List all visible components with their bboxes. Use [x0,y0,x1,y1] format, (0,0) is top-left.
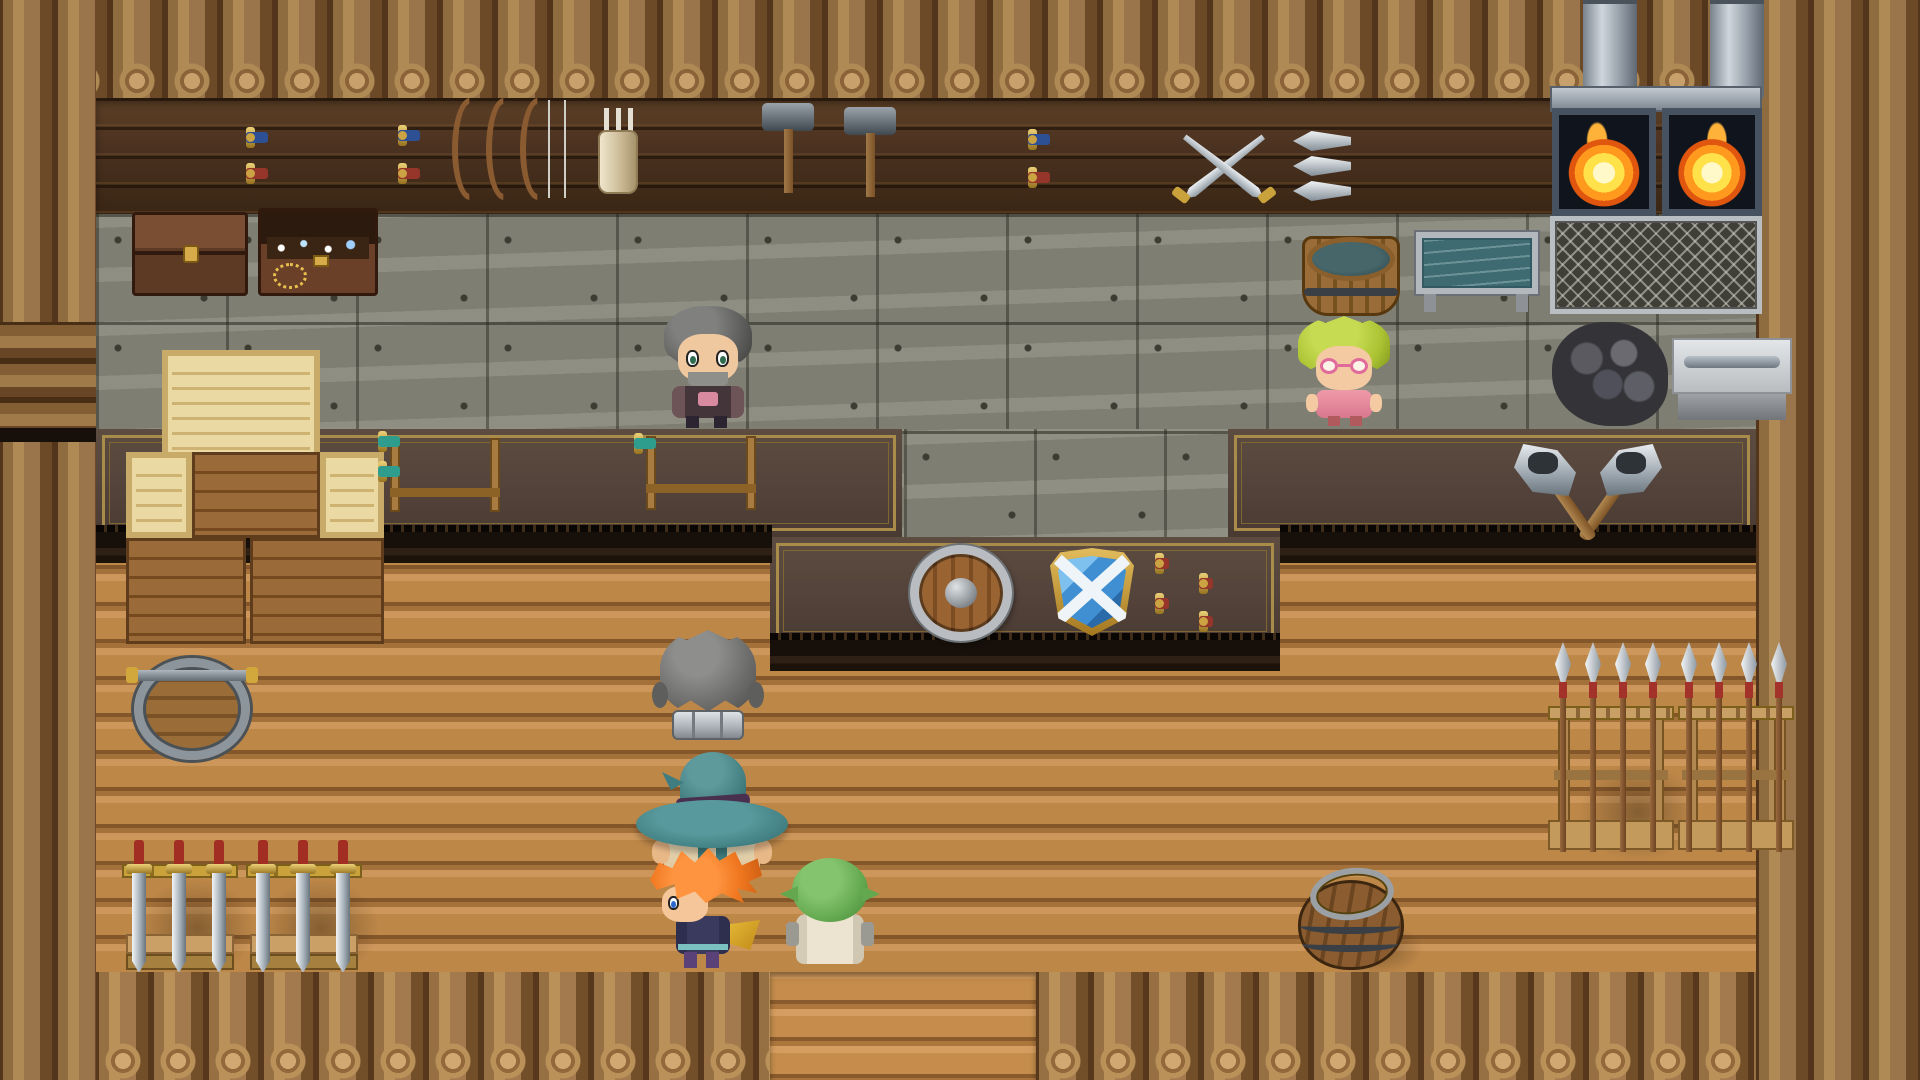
table-base [1678,394,1786,420]
west-passage-opening[interactable] [0,322,96,428]
spear-band [1649,682,1657,698]
racked-sword [166,840,192,978]
racked-sword [126,840,152,978]
trough-water-waves [1424,240,1530,286]
coal-pile [1552,322,1668,426]
spear-band [1685,682,1693,698]
knight-side-tuft [652,682,668,708]
pommel [246,133,255,142]
hero-pupil [671,901,676,908]
spear-rack [1548,642,1676,860]
throwing-knife [1199,610,1283,632]
west-wall [0,0,96,322]
spear-shaft [1776,698,1782,852]
spear [1293,180,1549,202]
npc-leg [686,416,699,428]
racked-spear [1614,642,1632,852]
racked-sword [290,840,316,978]
knight-collar-seam [720,712,723,738]
pommel [246,169,255,178]
fire [1561,117,1647,207]
racked-spear [1584,642,1602,852]
bow [452,98,488,200]
spear-band [1559,682,1567,698]
chest-clasp [183,245,199,263]
wire-coil-barrel [126,642,258,760]
npc-glasses [1320,358,1338,374]
grip [134,840,144,866]
racked-spear [1644,642,1662,852]
guard [330,864,356,874]
grinding-table [1672,330,1792,426]
sword [1028,128,1166,150]
west-wall-lower [0,442,96,1080]
grip [214,840,224,866]
wall-crossed-swords [1172,126,1276,210]
npc-leg [1328,416,1340,426]
spear-shaft [1590,698,1596,852]
display-sword [378,430,512,452]
guard [290,864,316,874]
blade [212,873,226,973]
party-hero[interactable] [646,848,766,968]
display-sword [634,432,768,454]
tub-water [1312,242,1390,276]
crate-dark-bottom-right [250,538,384,644]
sword [246,126,422,148]
spearhead [1585,642,1601,682]
grip [378,436,400,447]
fire [1671,117,1753,207]
wall-hammer-pair [762,103,902,197]
spearhead [1711,642,1727,682]
water-trough [1416,228,1538,316]
npc-pupil [720,356,726,364]
npc-leg [714,416,727,428]
wall-spear-row [1293,130,1549,202]
south-wall-left [96,972,770,1080]
racked-spear [1680,642,1698,852]
racked-sword [206,840,232,978]
hammer-head [844,107,896,135]
sword-stand-single [640,430,774,516]
pommel [1199,579,1208,588]
grip [298,840,308,866]
crate-dark-bottom-left [126,538,246,644]
grip [258,840,268,866]
pommel [1028,135,1037,144]
goblin-arm [786,922,799,946]
bow [520,98,556,200]
pommel [1155,599,1164,608]
stone-wall-extension [900,429,1230,537]
spear-band [1745,682,1753,698]
npc-leg [1350,416,1362,426]
crossed-battle-axes [1512,440,1662,536]
racked-spear [1554,642,1572,852]
spear-band [1589,682,1597,698]
coal-rocks [1552,322,1668,426]
spear-shaft [1716,698,1722,852]
racked-spear [1740,642,1758,852]
spear [1293,155,1539,177]
barrel-hoop [1302,936,1398,952]
smith-hammer [844,107,896,197]
npc-pupil [690,356,696,364]
rod-cap [246,667,258,683]
shopkeeper-npc[interactable] [1294,316,1394,428]
grip [338,840,348,866]
crate-light-small [126,452,192,538]
grip [378,466,400,477]
spearhead [1615,642,1631,682]
guard [250,864,276,874]
counter-front-pocket [770,633,1280,671]
furnace-firebox[interactable] [1552,108,1656,216]
blade [296,873,310,973]
goblin-ear [862,886,880,902]
spearhead [1555,642,1571,682]
wall-quiver [596,108,642,194]
blade [172,873,186,973]
hero-leg [684,952,697,968]
blade [336,873,350,973]
spearhead [1681,642,1697,682]
throwing-knife [1155,552,1239,574]
knight-hair [660,630,756,714]
tub-band [1304,288,1398,296]
rod-cap [126,667,138,683]
party-goblin[interactable] [782,858,878,968]
mage-hat-brim [636,800,788,848]
bow [486,98,522,200]
racked-spear [1710,642,1728,852]
blacksmith-npc[interactable] [656,306,760,428]
water-tub [1302,226,1400,322]
blade [256,873,270,973]
coil-rod [126,670,258,681]
bow-string [548,100,550,198]
spearhead [1645,642,1661,682]
knight-collar-seam [692,712,695,738]
quiver-body [598,130,638,194]
spearhead [1741,642,1757,682]
sword [1028,166,1166,188]
spearhead [1771,642,1787,682]
spear-shaft [1686,698,1692,852]
pommel [398,131,407,140]
spear-shaft [1650,698,1656,852]
gold-chain [273,263,307,289]
trough-tank [1416,232,1538,294]
blade-on-table [1684,356,1780,368]
bow-string [564,100,566,198]
grip [174,840,184,866]
axe-etch [1528,452,1558,474]
throwing-knife-set [1155,552,1285,638]
hammer-head [762,103,814,131]
party-knight[interactable] [652,630,764,762]
furnace-firebox[interactable] [1662,108,1762,216]
trough-leg [1424,294,1436,312]
goblin-arm [861,922,874,946]
chest-closed[interactable] [132,212,248,296]
npc-body [1316,390,1372,418]
crossed-hilt [1257,186,1277,205]
stand-bar [646,484,756,493]
counter-right [1228,429,1756,537]
spear-band [1775,682,1783,698]
racked-spear [1770,642,1788,852]
buckler-boss [945,578,977,608]
spear-shaft [1560,698,1566,852]
spear-shaft [1620,698,1626,852]
spearhead [1293,181,1351,201]
pommel [1028,173,1037,182]
pommel [1155,559,1164,568]
barrel-hoop [1300,918,1400,934]
grip [634,438,656,449]
racked-sword [330,840,356,978]
npc-arm [1370,394,1382,412]
spearhead [1293,156,1351,176]
pommel [398,169,407,178]
npc-armor-accent [698,392,718,406]
knight-armor-collar [672,710,744,740]
wall-bow-rack [452,96,602,202]
round-buckler [910,545,1012,641]
blade [132,873,146,973]
wall-sword-pair-c [1028,126,1166,200]
west-passage-shadow [0,428,96,442]
sword-stand-double [384,430,518,520]
chest-open[interactable] [258,208,378,296]
npc-arm [1306,394,1318,412]
trough-leg [1516,294,1528,312]
axe-etch [1616,452,1646,474]
guard [206,864,232,874]
wooden-barrel [1298,866,1408,972]
south-wall-right [1036,972,1756,1080]
crossed-hilt [1171,186,1191,205]
spear-band [1715,682,1723,698]
downward-sword-rack [122,818,244,978]
hero-belt [678,944,728,950]
downward-sword-rack [246,818,368,978]
guard [166,864,192,874]
guard [126,864,152,874]
crate-light-right [320,452,384,538]
wall-sword-pair-a [246,122,422,198]
game-viewport [0,0,1920,1080]
chest-clasp [313,255,329,267]
display-sword [378,460,512,482]
hammer-handle [866,133,875,197]
knight-side-tuft [748,682,764,708]
south-doorway[interactable] [770,972,1036,1080]
throwing-knife [1199,572,1283,594]
hero-leg [706,952,719,968]
goblin-ear [780,886,798,902]
metal-grate [1550,216,1762,314]
racked-sword [250,840,276,978]
stand-bar [390,488,500,497]
pommel [1199,617,1208,626]
hammer-handle [784,129,793,193]
spearhead [1293,131,1351,151]
spear [1293,130,1549,152]
east-wall [1756,0,1920,1080]
npc-glasses-bridge [1338,364,1350,367]
goblin-head [792,858,868,922]
sword [246,162,422,184]
grate-mesh [1557,223,1755,307]
smith-hammer [762,103,814,197]
crate-dark-mid [192,452,320,538]
spear-rack [1678,642,1796,860]
spear-shaft [1746,698,1752,852]
spear-band [1619,682,1627,698]
npc-glasses [1350,358,1368,374]
